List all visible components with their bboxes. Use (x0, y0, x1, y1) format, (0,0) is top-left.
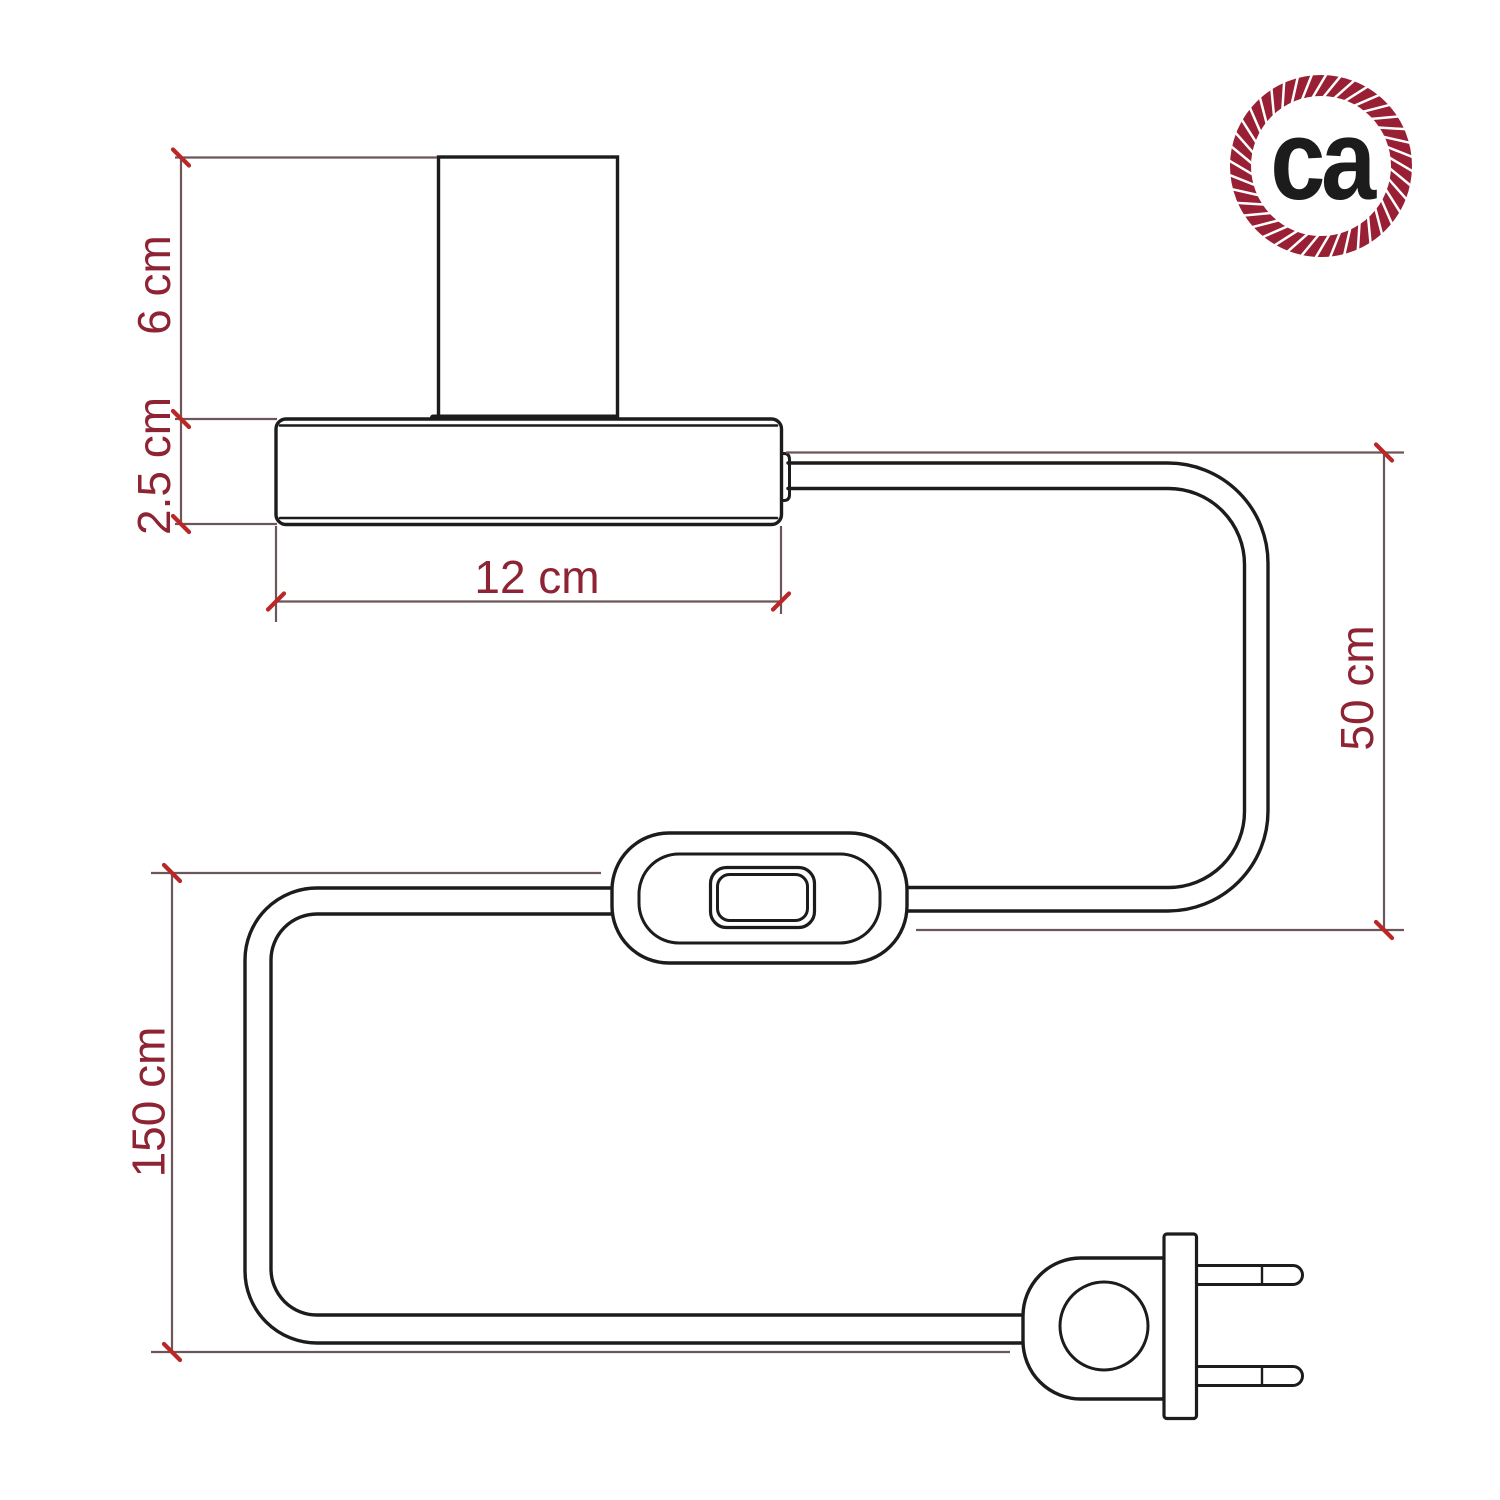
svg-text:2.5 cm: 2.5 cm (128, 397, 180, 535)
svg-text:ca: ca (1270, 96, 1377, 224)
svg-text:150 cm: 150 cm (123, 1027, 175, 1178)
svg-text:50 cm: 50 cm (1331, 625, 1383, 750)
svg-text:6 cm: 6 cm (128, 235, 180, 335)
svg-text:12 cm: 12 cm (474, 551, 599, 603)
